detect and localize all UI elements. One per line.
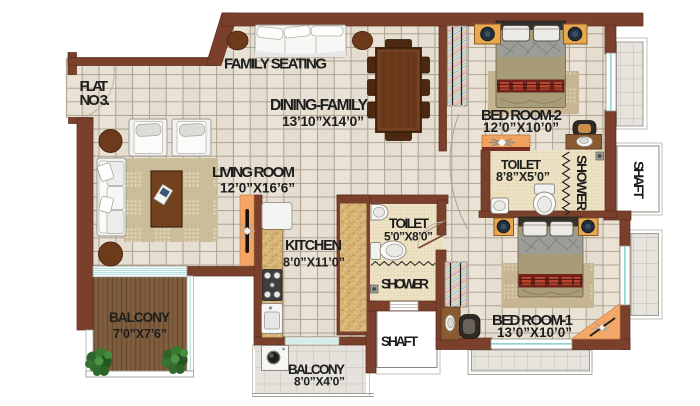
svg-text:SHOWER: SHOWER bbox=[381, 276, 429, 292]
svg-text:SHAFT: SHAFT bbox=[631, 161, 647, 199]
svg-text:NO 3.: NO 3. bbox=[80, 92, 111, 109]
svg-text:8’0”X4’0”: 8’0”X4’0” bbox=[294, 375, 345, 389]
svg-text:12’0”X16’6”: 12’0”X16’6” bbox=[220, 181, 295, 196]
svg-text:13’0”X10’0”: 13’0”X10’0” bbox=[497, 325, 572, 340]
svg-text:BALCONY: BALCONY bbox=[109, 310, 170, 325]
svg-text:FAMILY SEATING: FAMILY SEATING bbox=[224, 56, 327, 73]
svg-text:SHOWER: SHOWER bbox=[574, 155, 590, 211]
svg-text:SHAFT: SHAFT bbox=[381, 334, 419, 349]
svg-text:12’0”X10’0”: 12’0”X10’0” bbox=[483, 120, 559, 135]
svg-text:KITCHEN: KITCHEN bbox=[285, 238, 342, 254]
svg-text:LIVING ROOM: LIVING ROOM bbox=[212, 164, 295, 181]
svg-text:7’0”X7’6”: 7’0”X7’6” bbox=[113, 327, 167, 341]
svg-text:13’10”X14’0”: 13’10”X14’0” bbox=[282, 113, 364, 129]
svg-text:8’8”X5’0”: 8’8”X5’0” bbox=[496, 170, 550, 184]
svg-text:5’0”X8’0”: 5’0”X8’0” bbox=[384, 230, 433, 244]
svg-text:8’0”X11’0”: 8’0”X11’0” bbox=[283, 256, 345, 270]
svg-text:DINING-FAMILY: DINING-FAMILY bbox=[270, 97, 369, 114]
